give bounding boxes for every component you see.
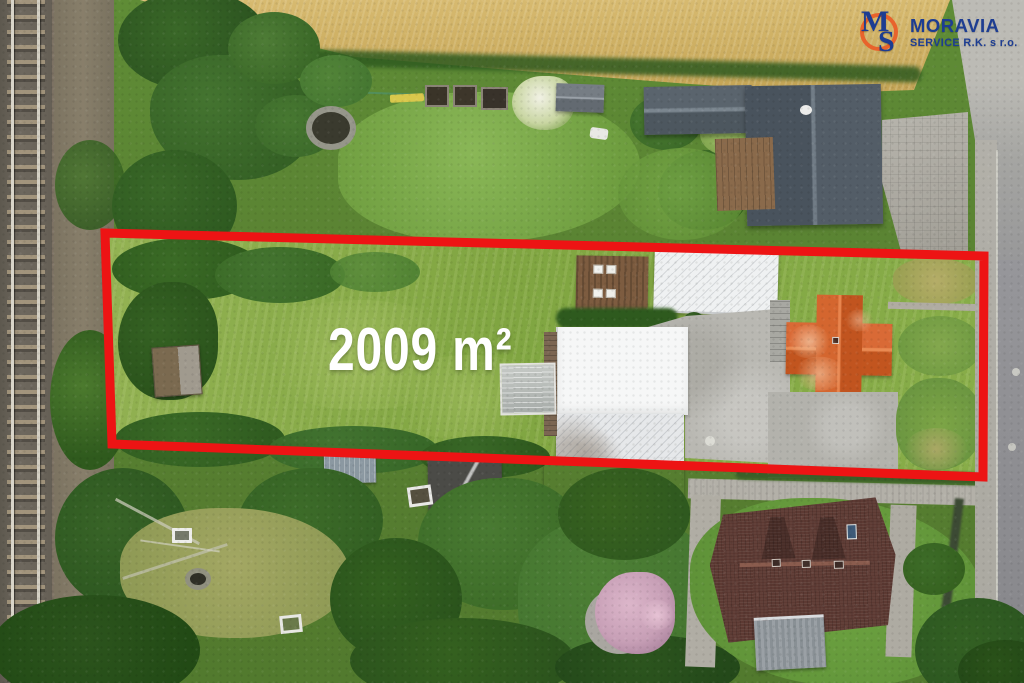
aerial-property-photo: 2009 m² M S MORAVIA SERVICE R.K. s r.o. (0, 0, 1024, 683)
logo-monogram-s: S (878, 27, 895, 57)
parcel-area-label: 2009 m² (328, 320, 512, 380)
parcel-boundary-line (105, 233, 984, 477)
logo-brand-text: MORAVIA (910, 15, 1000, 37)
logo-subtitle-text: SERVICE R.K. s r.o. (910, 37, 1018, 49)
watermark-logo: M S MORAVIA SERVICE R.K. s r.o. (858, 6, 1020, 60)
